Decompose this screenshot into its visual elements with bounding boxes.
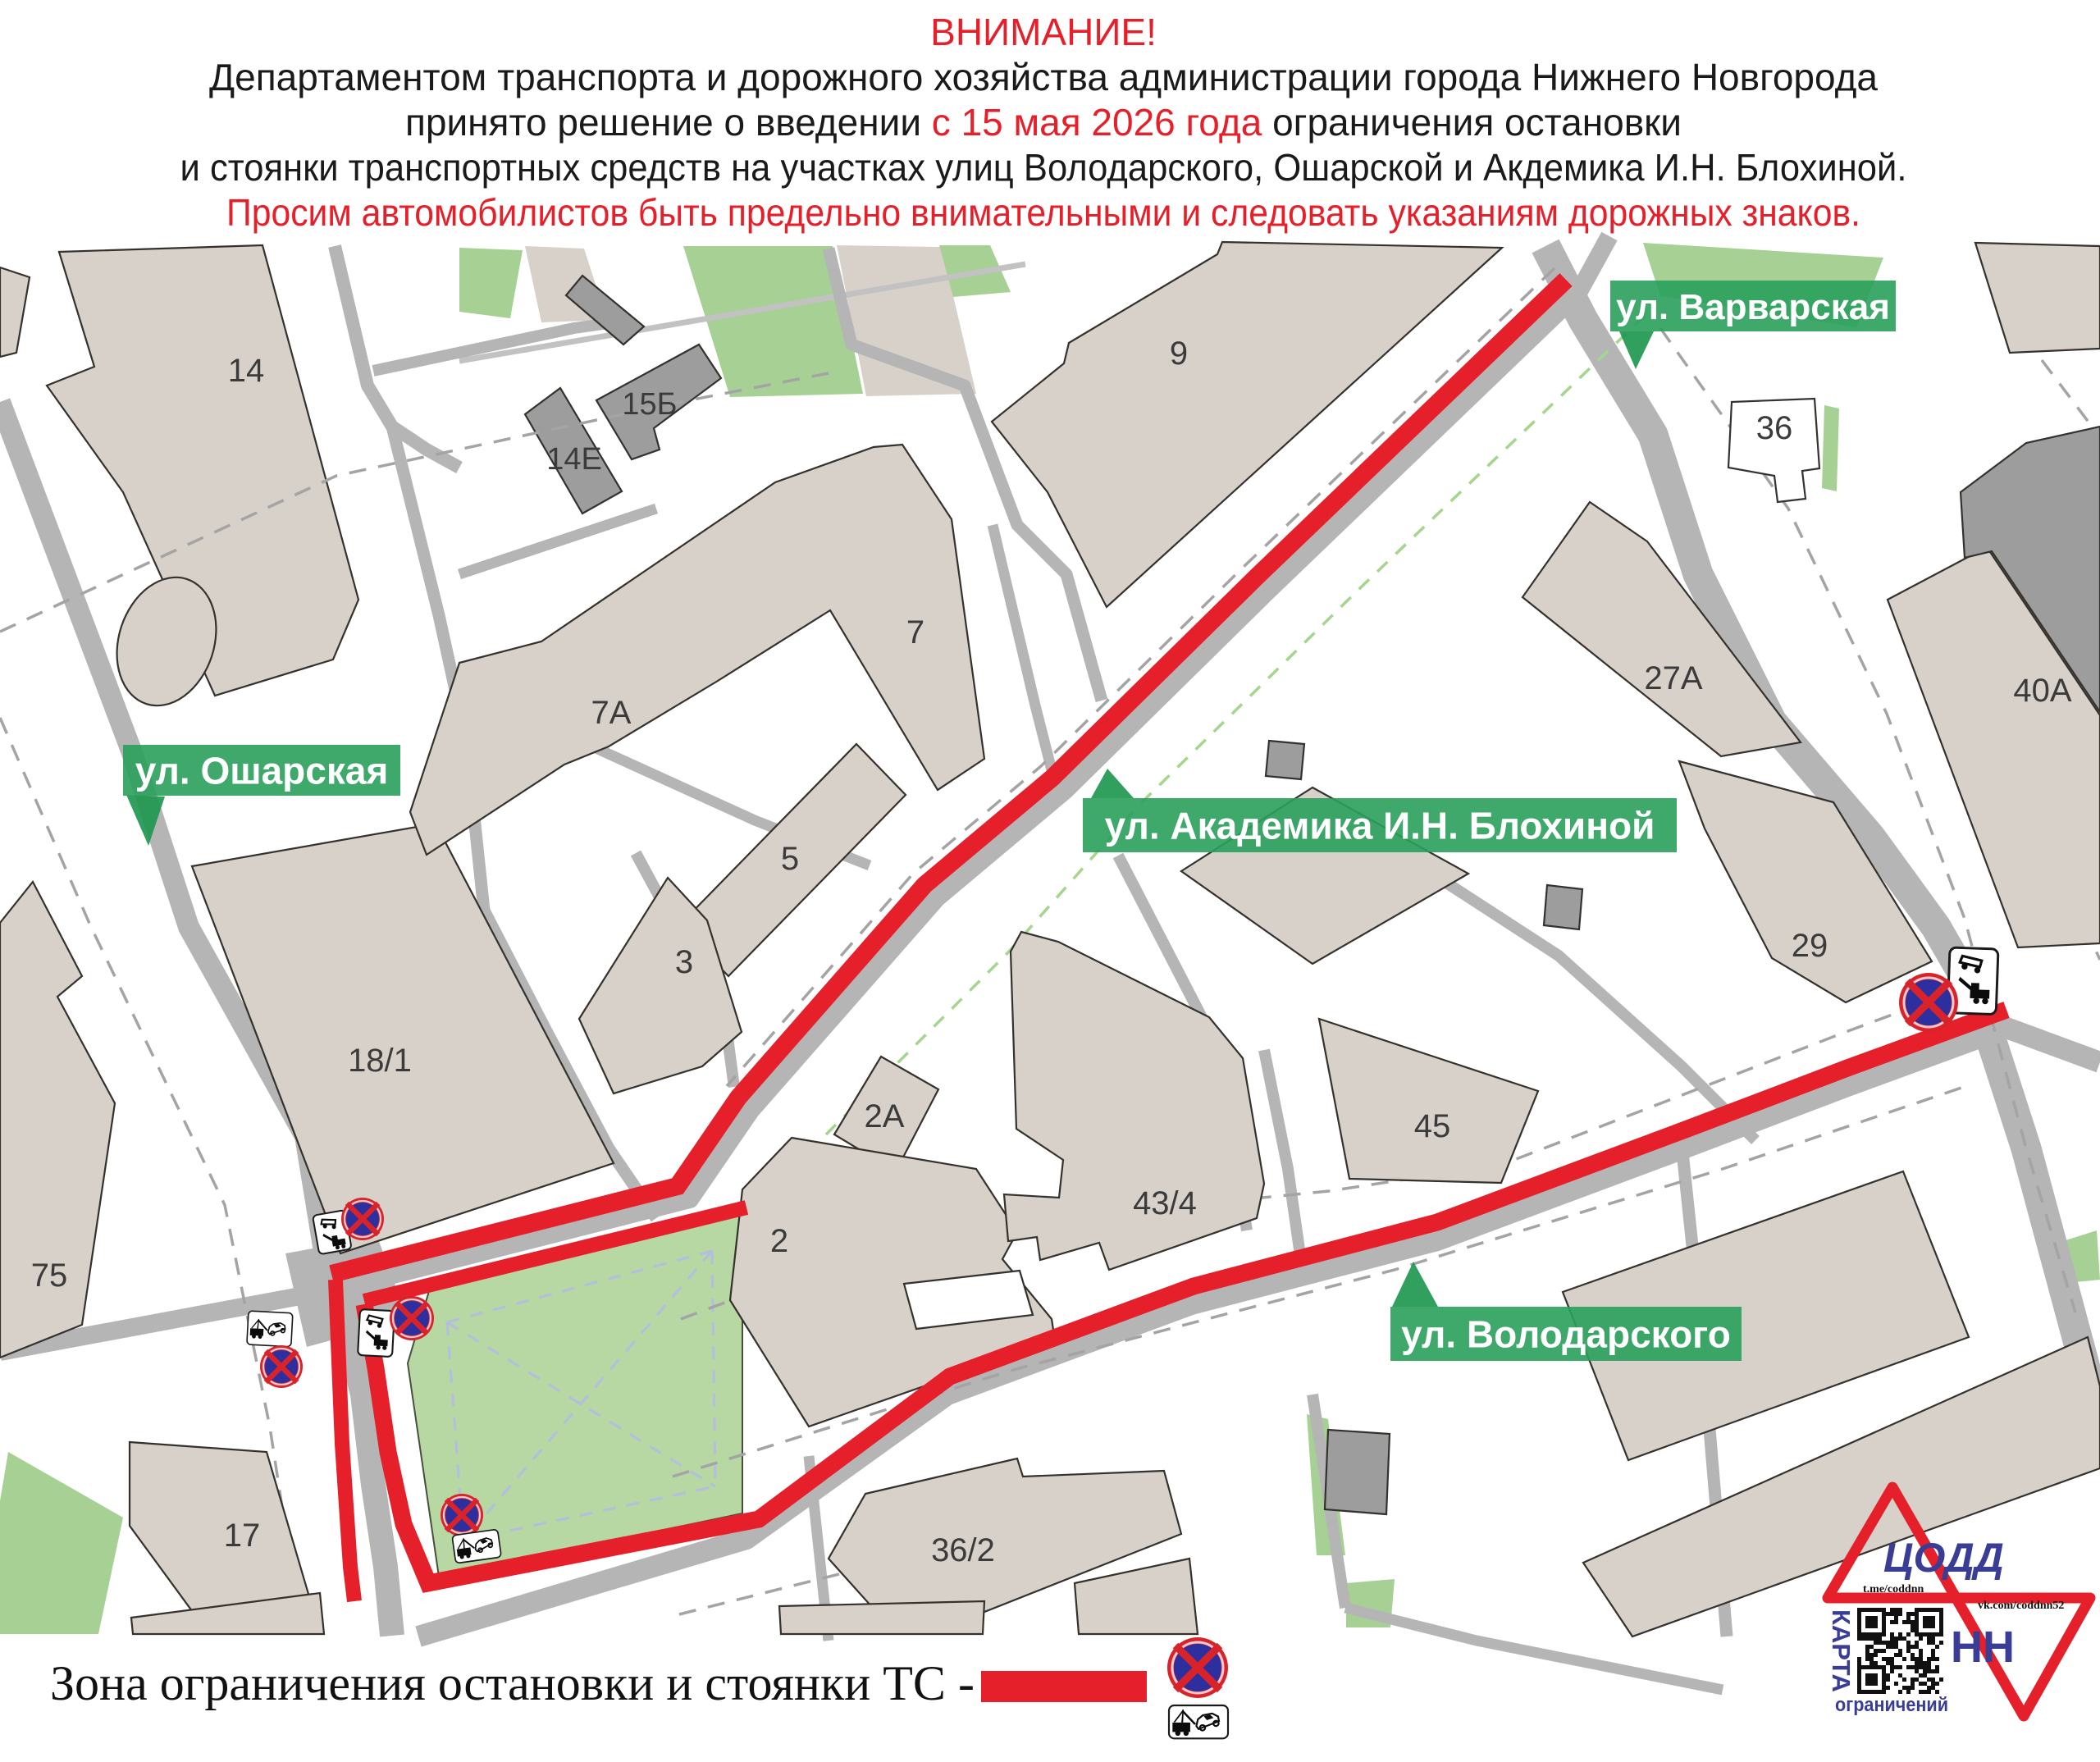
svg-text:ул. Володарского: ул. Володарского — [1401, 1313, 1731, 1356]
svg-text:45: 45 — [1414, 1108, 1451, 1144]
svg-text:ул. Варварская: ул. Варварская — [1616, 287, 1890, 327]
svg-text:Просим автомобилистов быть пре: Просим автомобилистов быть предельно вни… — [226, 191, 1860, 234]
svg-text:14: 14 — [228, 353, 265, 389]
svg-text:и стоянки транспортных средств: и стоянки транспортных средств на участк… — [180, 146, 1907, 189]
svg-text:75: 75 — [31, 1258, 68, 1294]
svg-text:Зона ограничения остановки и с: Зона ограничения остановки и стоянки ТС … — [50, 1656, 975, 1710]
svg-text:t.me/coddnn: t.me/coddnn — [1863, 1583, 1924, 1595]
svg-text:ограничений: ограничений — [1835, 1694, 1948, 1716]
svg-text:vk.com/coddnn52: vk.com/coddnn52 — [1978, 1600, 2064, 1612]
svg-text:ВНИМАНИЕ!: ВНИМАНИЕ! — [930, 11, 1157, 53]
svg-text:ул. Ошарская: ул. Ошарская — [135, 750, 389, 792]
svg-text:9: 9 — [1170, 336, 1188, 372]
svg-text:40А: 40А — [2013, 673, 2071, 709]
svg-text:18/1: 18/1 — [348, 1043, 412, 1079]
svg-text:2А: 2А — [865, 1098, 905, 1134]
svg-text:ЦОДД: ЦОДД — [1883, 1535, 2004, 1581]
svg-text:43/4: 43/4 — [1133, 1185, 1197, 1221]
svg-text:принято решение о введении с 1: принято решение о введении с 15 мая 2026… — [405, 101, 1682, 144]
svg-text:36: 36 — [1756, 410, 1793, 446]
svg-text:НН: НН — [1951, 1623, 2015, 1672]
svg-text:2: 2 — [770, 1223, 788, 1259]
svg-text:5: 5 — [781, 841, 799, 877]
svg-text:7А: 7А — [591, 695, 632, 731]
svg-text:29: 29 — [1792, 928, 1828, 964]
svg-text:36/2: 36/2 — [931, 1532, 995, 1568]
svg-text:27А: 27А — [1644, 660, 1702, 696]
svg-text:15Б: 15Б — [622, 387, 677, 422]
svg-text:КАРТА: КАРТА — [1827, 1609, 1856, 1692]
svg-text:ул. Академика И.Н. Блохиной: ул. Академика И.Н. Блохиной — [1105, 805, 1655, 847]
svg-text:Департаментом транспорта и дор: Департаментом транспорта и дорожного хоз… — [209, 56, 1878, 98]
svg-text:3: 3 — [675, 944, 693, 980]
svg-text:14Е: 14Е — [546, 442, 602, 477]
svg-text:17: 17 — [224, 1518, 261, 1554]
svg-text:7: 7 — [906, 614, 924, 650]
